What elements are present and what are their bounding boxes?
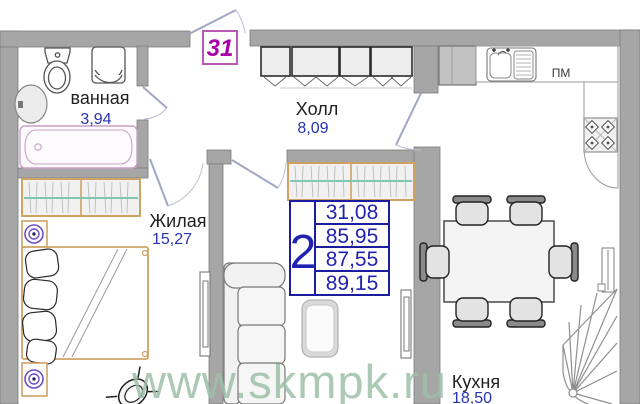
bathroom-area: 3,94	[80, 111, 111, 128]
washing-machine	[92, 47, 125, 83]
hall-label: Холл	[296, 99, 338, 119]
area-value-4: 89,15	[326, 272, 379, 295]
floor-plan: ПМ	[0, 0, 640, 404]
hall-closet	[261, 47, 412, 88]
nightstand-bottom	[22, 363, 47, 396]
rooms-count: 2	[290, 226, 317, 279]
kitchen-sink	[487, 48, 536, 81]
coffee-table	[302, 300, 338, 357]
bathtub	[20, 126, 137, 168]
dining-table	[444, 221, 554, 302]
kitchen-door	[396, 93, 421, 150]
bathroom-label: ванная	[70, 88, 129, 108]
area-value-1: 31,08	[326, 201, 379, 224]
apartment-number-badge: 31	[203, 31, 237, 64]
bedroom-door	[150, 159, 203, 206]
bathroom-sink	[15, 85, 47, 123]
pillows	[22, 248, 60, 365]
living-door	[232, 160, 286, 188]
area-table: 2 31,08 85,95 87,55 89,15	[290, 201, 389, 295]
toilet	[44, 48, 70, 93]
kitchen-label: Кухня	[452, 372, 500, 392]
bedroom-label: Жилая	[150, 211, 207, 231]
stove	[584, 118, 617, 152]
hall-area: 8,09	[297, 120, 328, 137]
radiator	[598, 248, 614, 292]
fridge	[439, 46, 476, 85]
living-tv	[401, 290, 411, 358]
bedroom-area: 15,27	[152, 231, 192, 248]
dishwasher-label: ПМ	[552, 66, 571, 80]
kitchen-area: 18,50	[452, 390, 492, 404]
stairs	[563, 289, 617, 404]
area-value-3: 87,55	[326, 248, 379, 271]
bedroom-wardrobe	[22, 179, 140, 216]
area-value-2: 85,95	[326, 225, 379, 248]
living-wardrobe	[288, 163, 414, 200]
watermark-text: www.skmpk.ru	[131, 355, 447, 404]
apartment-number: 31	[207, 35, 234, 62]
bathroom-door	[143, 87, 167, 119]
bed	[22, 247, 148, 365]
bedroom-tv	[200, 272, 210, 356]
nightstand-top	[22, 221, 47, 247]
floor-plan-canvas: ПМ	[0, 0, 640, 404]
